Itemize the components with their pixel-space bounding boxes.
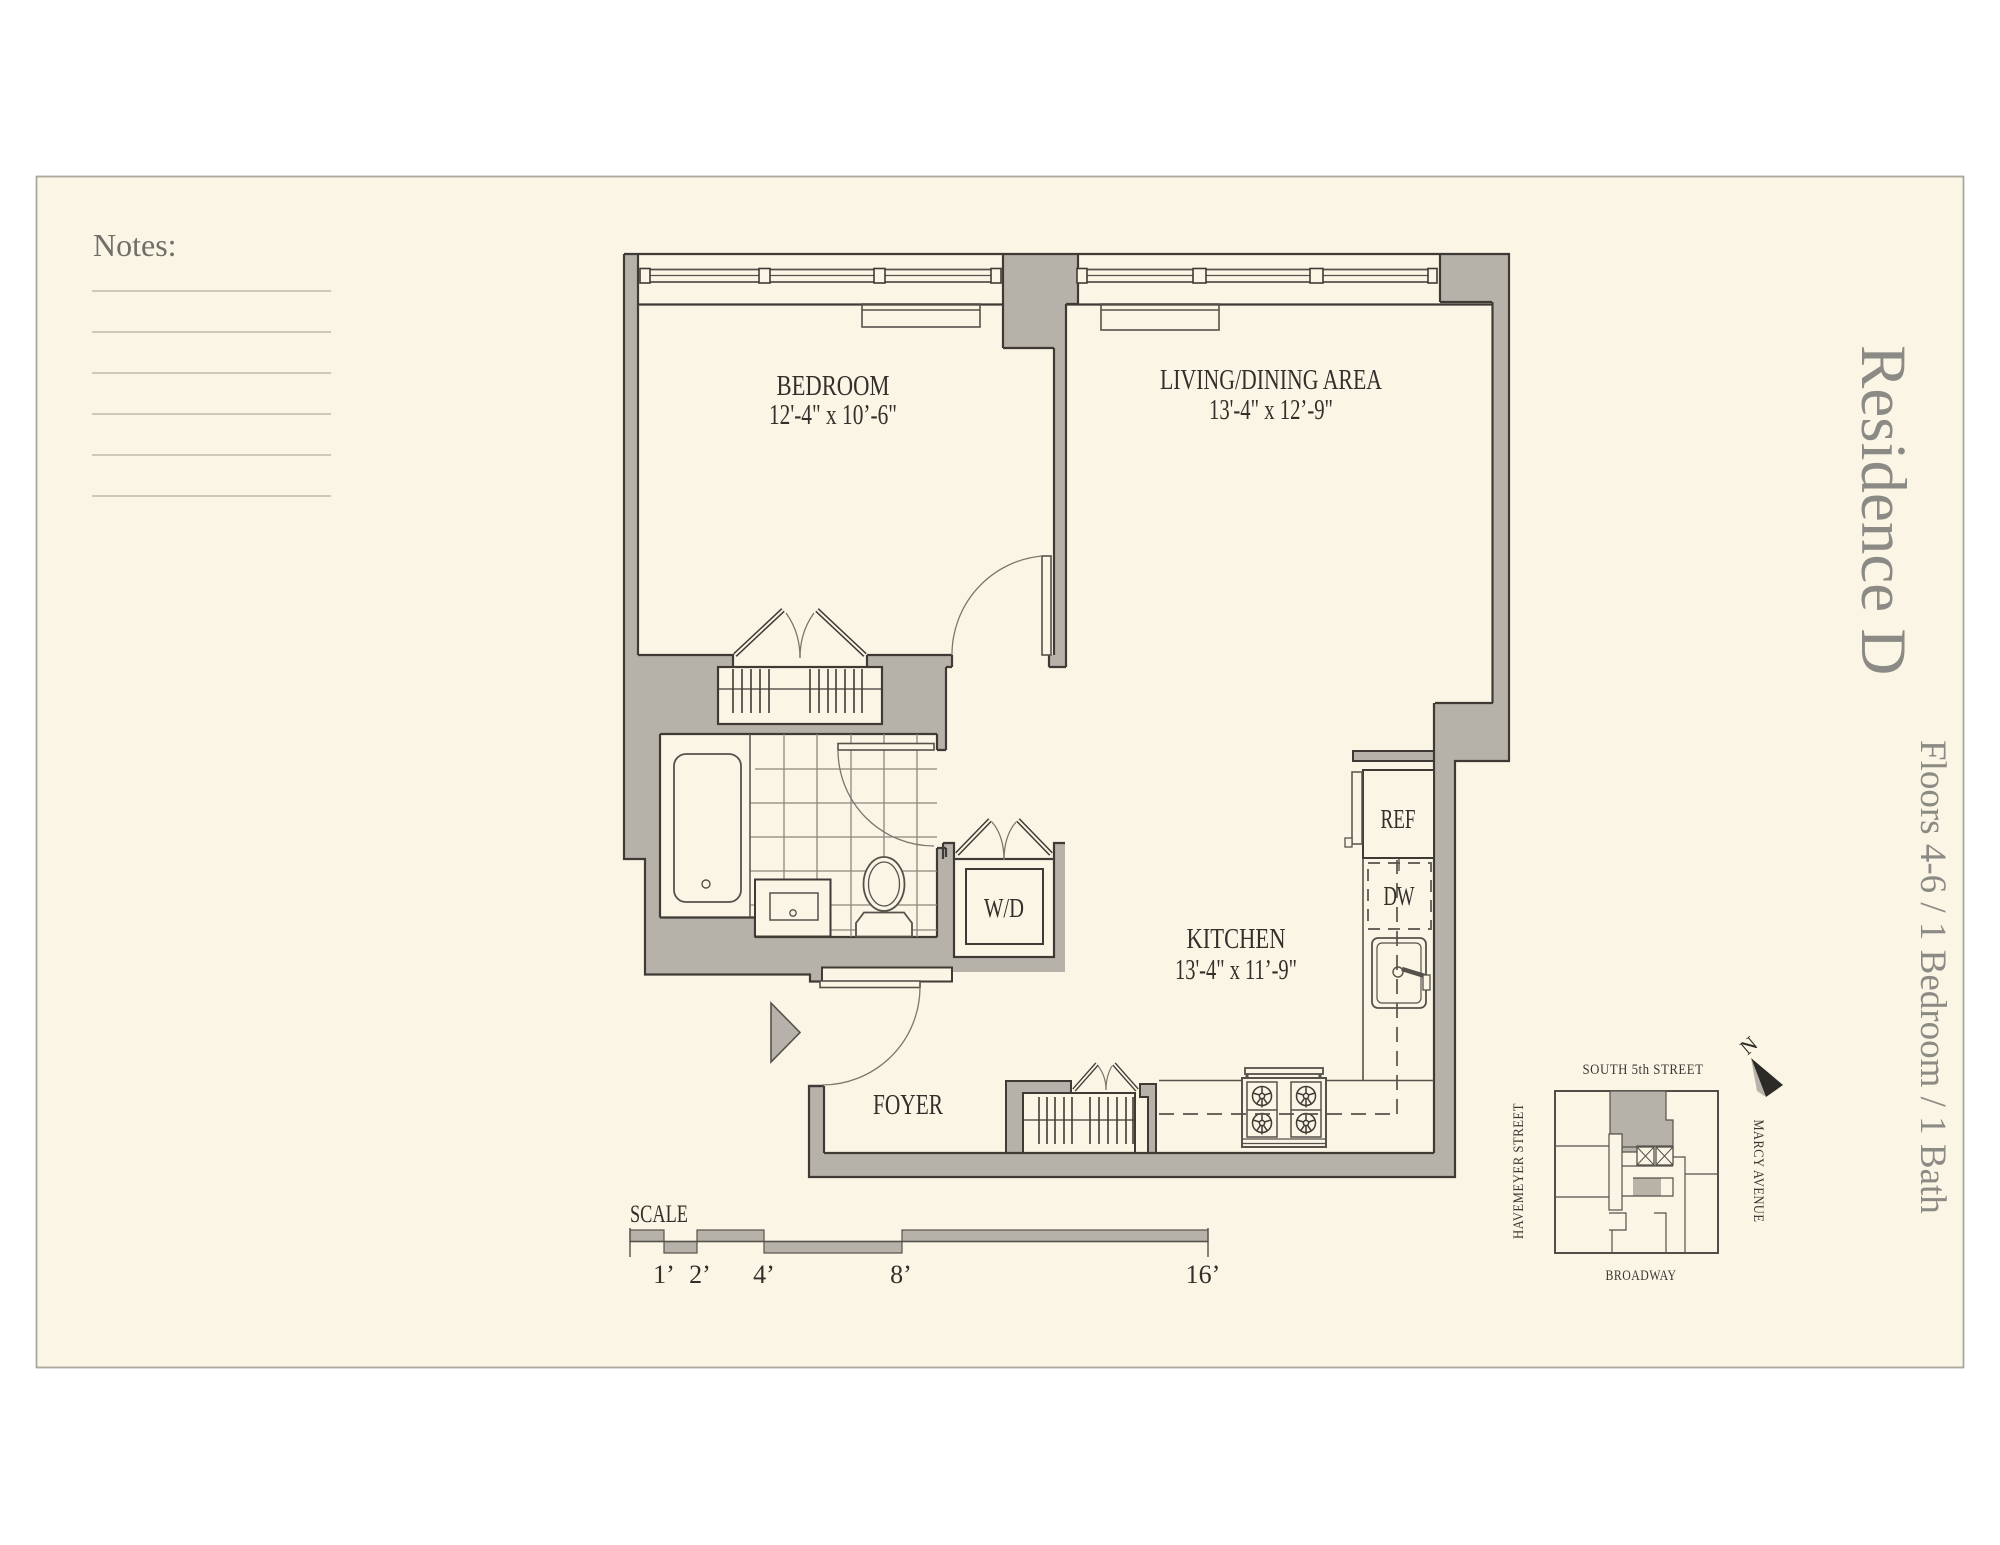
svg-text:KITCHEN: KITCHEN [1187,924,1286,955]
svg-text:SCALE: SCALE [630,1201,688,1228]
svg-text:BEDROOM: BEDROOM [777,371,890,402]
svg-text:4’: 4’ [753,1260,775,1289]
svg-text:Notes:: Notes: [93,227,177,263]
svg-text:REF: REF [1381,804,1416,834]
svg-text:W/D: W/D [984,893,1024,923]
svg-text:16’: 16’ [1186,1260,1221,1289]
svg-text:DW: DW [1384,881,1415,911]
svg-text:BROADWAY: BROADWAY [1606,1268,1677,1284]
svg-text:13'-4" x 12’-9": 13'-4" x 12’-9" [1209,395,1333,426]
svg-text:Residence D: Residence D [1847,345,1919,675]
svg-text:13'-4" x 11’-9": 13'-4" x 11’-9" [1175,955,1297,986]
svg-text:Floors 4-6 / 1 Bedroom / 1 Bat: Floors 4-6 / 1 Bedroom / 1 Bath [1912,740,1953,1214]
svg-text:LIVING/DINING AREA: LIVING/DINING AREA [1160,365,1383,396]
svg-text:8’: 8’ [890,1260,912,1289]
svg-text:1’: 1’ [653,1260,675,1289]
svg-text:SOUTH 5th STREET: SOUTH 5th STREET [1583,1062,1704,1078]
svg-text:FOYER: FOYER [873,1090,943,1121]
svg-text:2’: 2’ [689,1260,711,1289]
svg-text:12'-4" x 10’-6": 12'-4" x 10’-6" [769,400,897,431]
svg-text:HAVEMEYER STREET: HAVEMEYER STREET [1511,1103,1527,1239]
svg-text:MARCY AVENUE: MARCY AVENUE [1750,1120,1766,1223]
